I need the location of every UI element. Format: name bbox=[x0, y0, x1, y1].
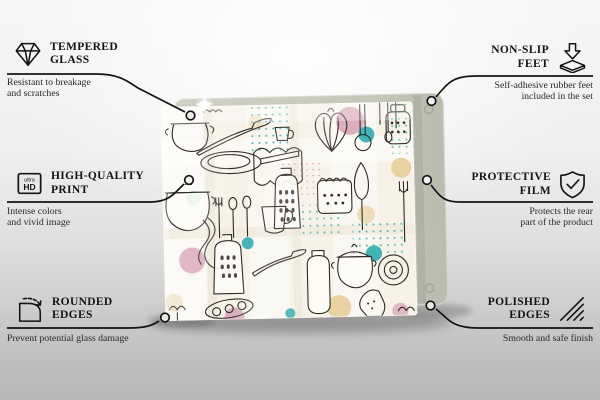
callout-title: FILM bbox=[471, 185, 551, 199]
connector-dot-non-slip-feet bbox=[427, 97, 436, 106]
callout-desc-tempered-glass: Resistant to breakageand scratches bbox=[7, 77, 91, 99]
callout-protective-film: PROTECTIVE FILM bbox=[471, 170, 586, 199]
callout-title: FEET bbox=[491, 58, 549, 72]
callout-title: NON-SLIP bbox=[491, 44, 549, 58]
diamond-icon bbox=[14, 40, 42, 68]
callout-desc-high-quality-print: Intense colorsand vivid image bbox=[7, 206, 70, 228]
callout-title: ROUNDED bbox=[52, 296, 113, 310]
callout-title: EDGES bbox=[52, 309, 113, 323]
callout-title: PRINT bbox=[51, 184, 144, 198]
hatch-lines-icon bbox=[558, 295, 586, 323]
callout-title: POLISHED bbox=[488, 296, 550, 310]
ultra-hd-icon: ultra HD bbox=[16, 171, 43, 196]
callout-polished-edges: POLISHED EDGES bbox=[488, 295, 586, 323]
connector-dot-rounded-edges bbox=[161, 313, 170, 322]
connector-dot-tempered-glass bbox=[186, 111, 195, 120]
callout-desc-protective-film: Protects the rearpart of the product bbox=[520, 206, 593, 228]
connector-dot-protective-film bbox=[423, 176, 432, 185]
callout-tempered-glass: TEMPERED GLASS bbox=[14, 40, 118, 68]
product-infographic: TEMPERED GLASS Resistant to breakageand … bbox=[0, 0, 600, 400]
callout-high-quality-print: ultra HD HIGH-QUALITY PRINT bbox=[16, 170, 144, 197]
rounded-corner-icon bbox=[16, 295, 44, 323]
shield-check-icon bbox=[559, 170, 586, 199]
connector-dot-high-quality-print bbox=[185, 176, 194, 185]
svg-text:HD: HD bbox=[23, 182, 35, 192]
callout-non-slip-feet: NON-SLIP FEET bbox=[491, 42, 588, 73]
callout-title: HIGH-QUALITY bbox=[51, 170, 144, 184]
callout-title: PROTECTIVE bbox=[471, 171, 551, 185]
callout-rounded-edges: ROUNDED EDGES bbox=[16, 295, 113, 323]
callout-title: GLASS bbox=[50, 54, 118, 68]
callout-desc-non-slip-feet: Self-adhesive rubber feetincluded in the… bbox=[495, 80, 593, 102]
connector-dot-polished-edges bbox=[426, 301, 435, 310]
callout-desc-polished-edges: Smooth and safe finish bbox=[503, 333, 593, 344]
callout-title: EDGES bbox=[488, 309, 550, 323]
callout-desc-rounded-edges: Prevent potential glass damage bbox=[7, 333, 129, 344]
arrow-onto-pad-icon bbox=[557, 42, 588, 73]
callout-title: TEMPERED bbox=[50, 41, 118, 55]
